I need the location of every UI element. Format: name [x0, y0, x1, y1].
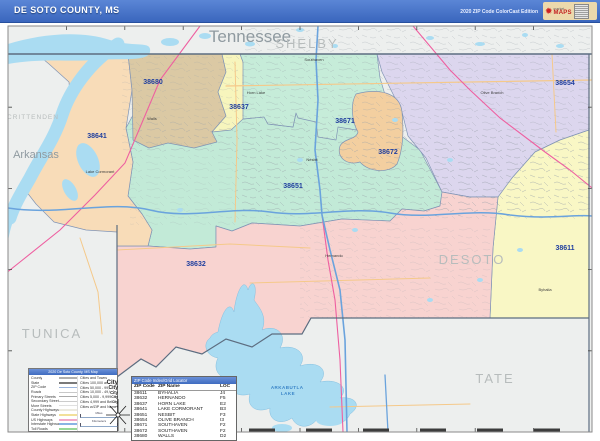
zip-label-38651: 38651	[283, 183, 303, 190]
compass-rose-icon	[103, 397, 133, 433]
legend-item-label: County Highways	[31, 408, 59, 412]
city-label-byhalia: Byhalia	[538, 287, 552, 292]
city-label-southaven: Southaven	[304, 57, 323, 62]
county-label-tunica: TUNICA	[22, 326, 82, 341]
legend-line-sample	[59, 396, 77, 397]
county-label-shelby: SHELBY	[275, 36, 338, 51]
legend-line-sample	[59, 377, 77, 379]
legend-city-label: Cities 100,000 and Above	[80, 381, 107, 385]
legend-line-sample	[59, 382, 77, 384]
legend-line-sample	[59, 428, 77, 430]
legend-line-sample	[59, 419, 77, 421]
zip-label-38672: 38672	[378, 149, 398, 156]
table-row: 38680WALLSD2	[132, 434, 236, 439]
zip-table-title: ZIP Code Index/Grid Locator	[132, 377, 236, 384]
legend-item-label: County	[31, 376, 42, 380]
logo-line2: MAPS	[554, 11, 572, 15]
legend-item-label: ZIP Code	[31, 385, 46, 389]
state-label-arkansas: Arkansas	[13, 149, 59, 161]
legend-item-label: US Highways	[31, 418, 53, 422]
legend-line-sample	[59, 401, 77, 402]
col-header-loc: LOC	[220, 384, 234, 390]
publisher-logo: ✹ market MAPS	[543, 2, 597, 20]
zip-label-38641: 38641	[87, 133, 107, 140]
legend-line-sample	[59, 392, 77, 393]
map-title: DE SOTO COUNTY, MS	[14, 5, 120, 15]
county-label-crittenden: CRITTENDEN	[7, 114, 59, 121]
city-label-olive-branch: Olive Branch	[481, 90, 504, 95]
col-header-zip-code: ZIP Code	[134, 384, 158, 390]
legend-city-label: Cities 10,000 - 49,999	[80, 390, 110, 394]
city-label-nesbit: Nesbit	[306, 157, 318, 162]
legend-line-sample	[59, 409, 77, 411]
zip-label-38637: 38637	[229, 104, 249, 111]
county-label-tate: TATE	[475, 371, 514, 386]
edition-label: 2020 ZIP Code ColorCast Edition	[460, 9, 538, 15]
legend-item-label: More Streets	[31, 404, 52, 408]
zip-label-38611: 38611	[555, 245, 574, 252]
zip-label-38671: 38671	[335, 118, 355, 125]
legend-item-label: Roads	[31, 390, 41, 394]
city-label-lake-cormorant: Lake Cormorant	[86, 169, 116, 174]
city-label-walls: Walls	[147, 116, 157, 121]
legend-city-sample: City	[110, 390, 118, 395]
logo-burst-icon: ✹	[545, 7, 553, 16]
legend-line-column: County State ZIP Code Roads Primary Stre…	[31, 376, 77, 431]
city-label-horn-lake: Horn Lake	[247, 90, 266, 95]
legend-item-label: State Highways	[31, 413, 56, 417]
logo-stamp	[574, 4, 589, 19]
zip-label-38680: 38680	[143, 79, 163, 86]
zip-index-table: ZIP Code Index/Grid Locator ZIP Code ZIP…	[131, 376, 237, 441]
legend-item-label: Toll Roads	[31, 427, 48, 431]
legend-item-label: Secondary Streets	[31, 399, 59, 403]
legend-line-sample	[59, 405, 77, 406]
legend-item-label: Primary Streets	[31, 395, 56, 399]
zip-table-header-row: ZIP Code ZIP Name LOC	[132, 384, 236, 391]
legend-item-label: State	[31, 381, 39, 385]
legend-item-label: Interstate Highways	[31, 422, 59, 426]
map-title-bar: DE SOTO COUNTY, MS 2020 ZIP Code ColorCa…	[0, 0, 600, 23]
county-label-desoto: DESOTO	[439, 252, 506, 267]
legend-city-label: Cities 50,000 - 99,999	[80, 386, 109, 390]
city-label-hernando: Hernando	[325, 253, 343, 258]
legend-line-sample	[59, 387, 77, 388]
zip-label-38632: 38632	[186, 261, 206, 268]
zip-label-38654: 38654	[555, 80, 575, 87]
legend-line-sample	[59, 414, 77, 416]
col-header-zip-name: ZIP Name	[158, 384, 220, 390]
legend-line-sample	[59, 423, 77, 425]
